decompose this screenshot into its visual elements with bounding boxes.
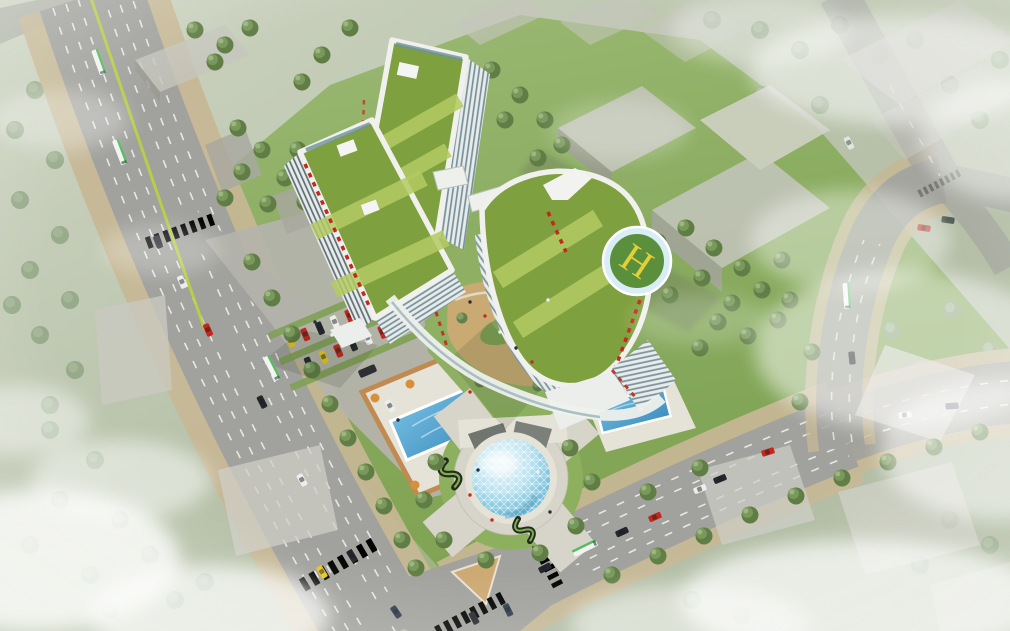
- rendering-canvas: H: [0, 0, 1010, 631]
- haze-vignette: [0, 0, 1010, 631]
- site-rendering: H: [0, 0, 1010, 631]
